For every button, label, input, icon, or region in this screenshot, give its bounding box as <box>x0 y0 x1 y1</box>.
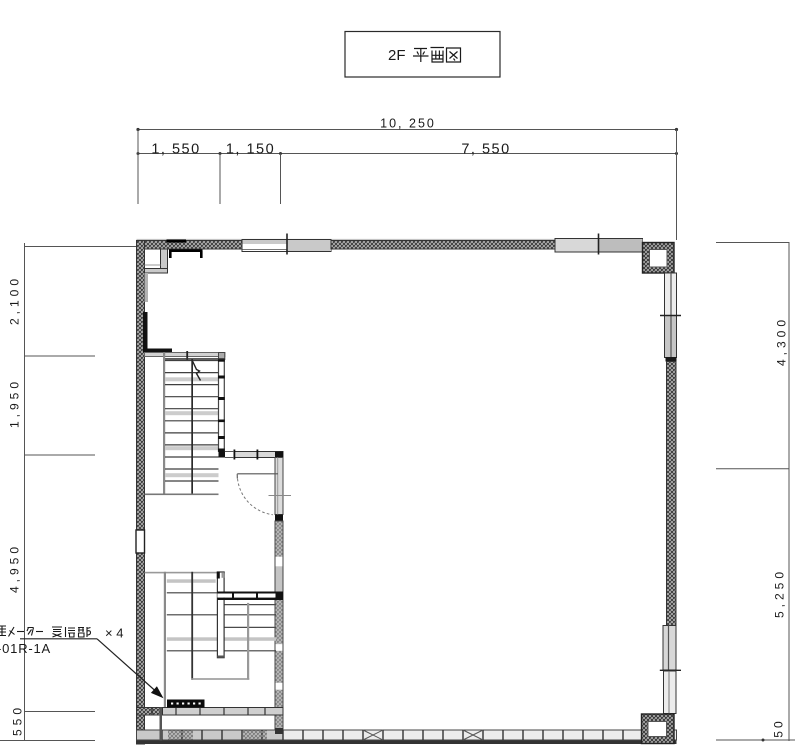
svg-text:5,250: 5,250 <box>773 568 787 618</box>
svg-text:550: 550 <box>11 704 25 736</box>
svg-text:1, 150: 1, 150 <box>226 142 275 158</box>
svg-text:4,300: 4,300 <box>775 316 789 366</box>
svg-text:× 4: × 4 <box>105 626 123 641</box>
svg-text:2F: 2F <box>388 47 406 64</box>
svg-text:2,100: 2,100 <box>8 275 22 325</box>
svg-text:7, 550: 7, 550 <box>461 142 510 158</box>
svg-text:50: 50 <box>772 718 786 737</box>
svg-text:1, 550: 1, 550 <box>151 142 200 158</box>
svg-text:1,950: 1,950 <box>8 378 22 428</box>
svg-text:4,950: 4,950 <box>8 543 22 593</box>
svg-text:-01R-1A: -01R-1A <box>0 641 51 656</box>
svg-text:10, 250: 10, 250 <box>380 117 436 131</box>
